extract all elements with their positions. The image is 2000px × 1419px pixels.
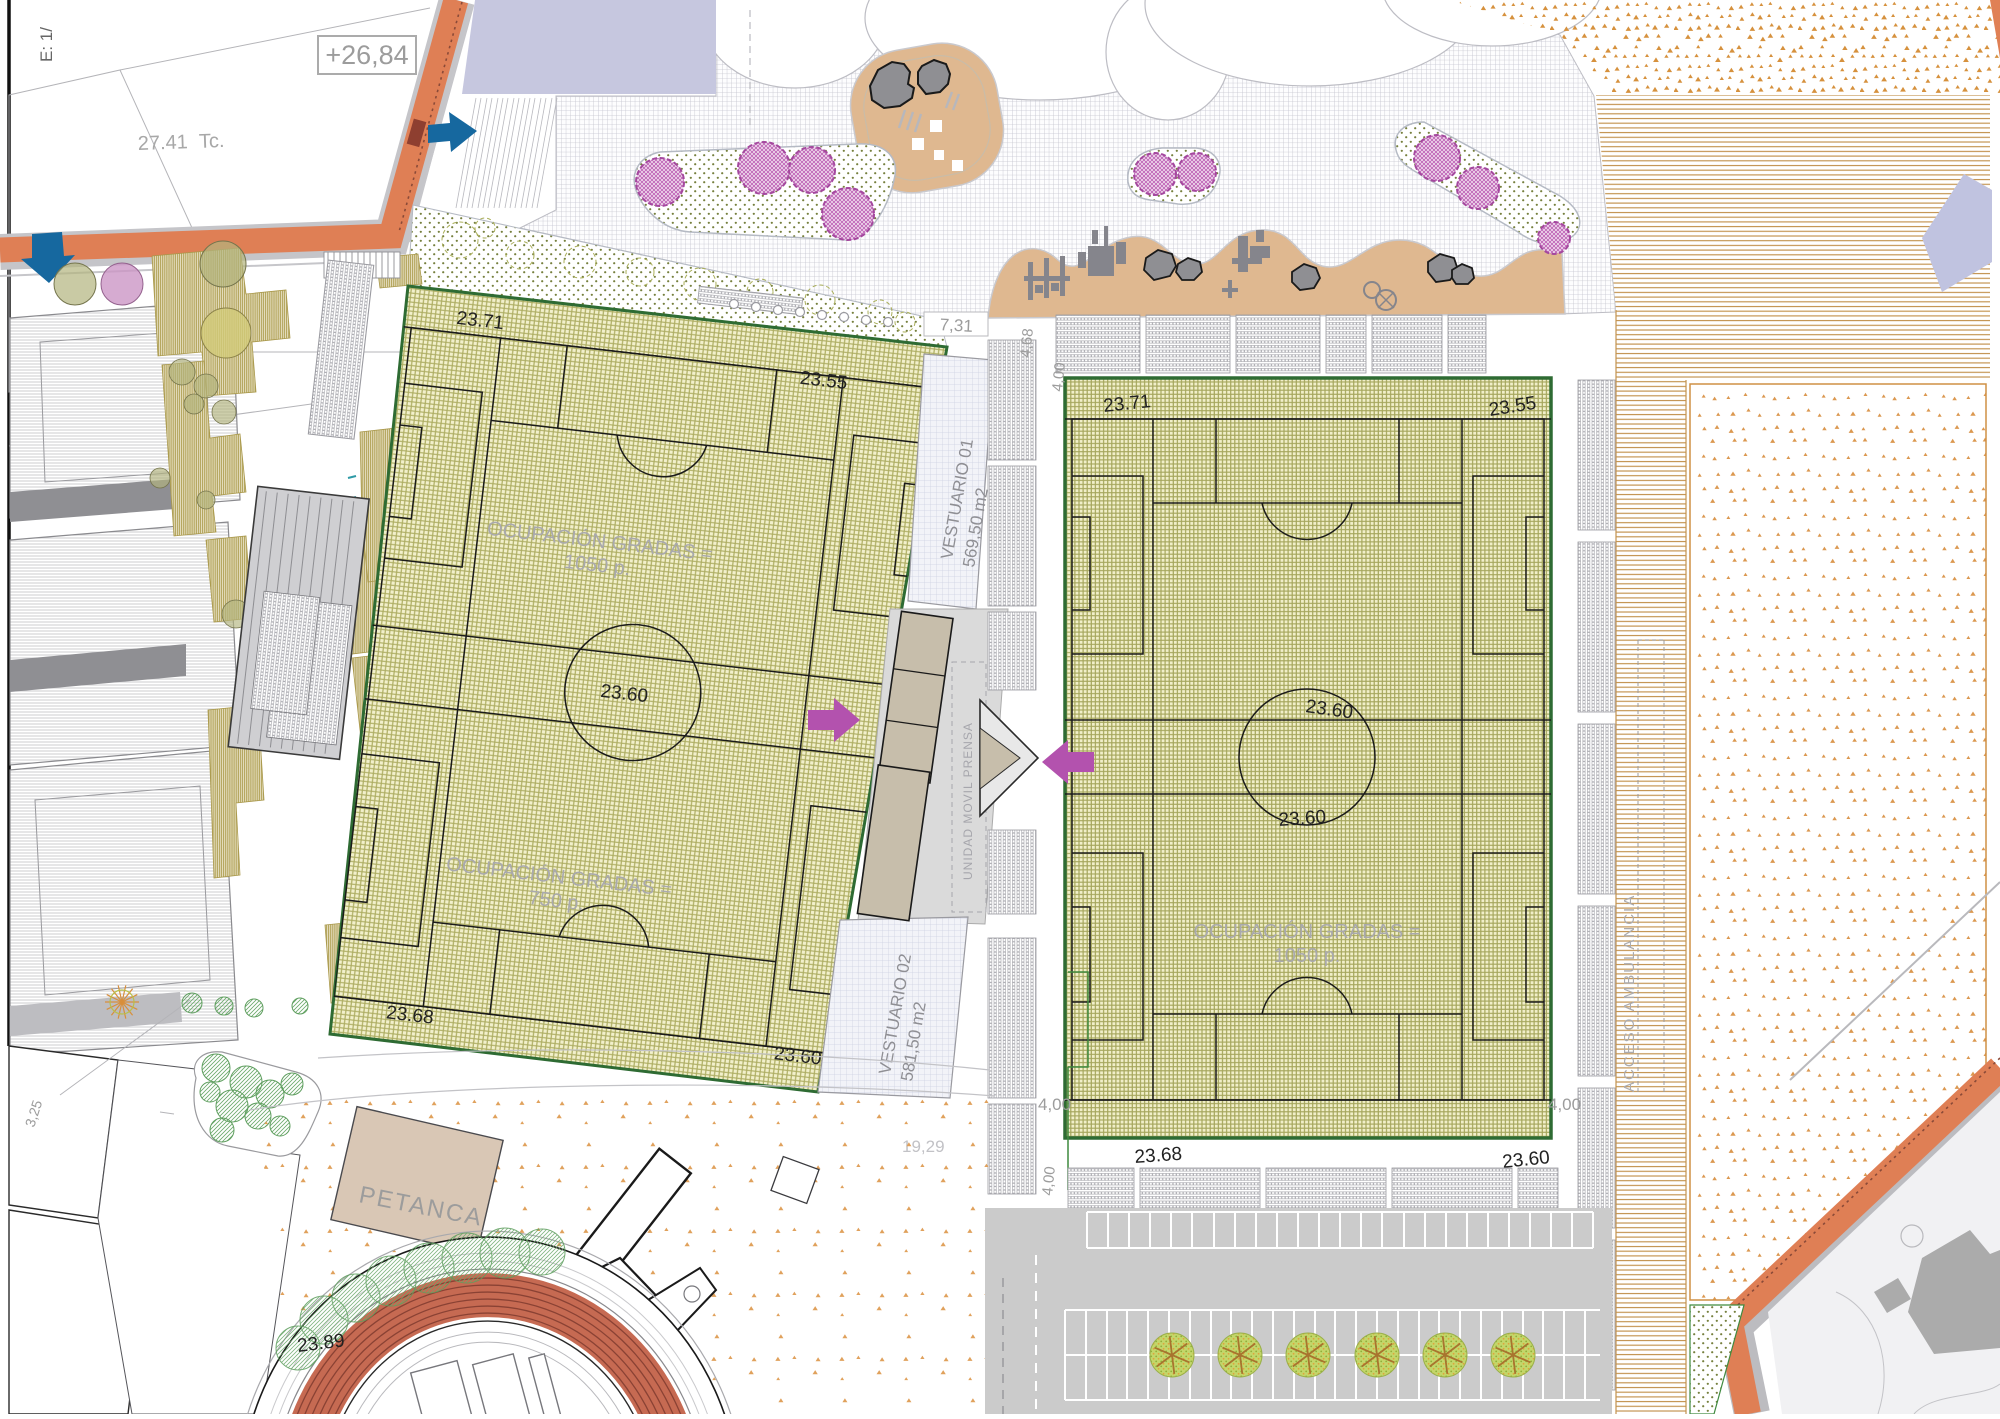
svg-text:7,31: 7,31: [939, 315, 973, 336]
svg-text:+26,84: +26,84: [325, 40, 408, 70]
svg-text:27.41 Tc.: 27.41 Tc.: [137, 130, 224, 155]
svg-text:E: 1/: E: 1/: [37, 27, 56, 62]
svg-text:23.60: 23.60: [1278, 807, 1327, 831]
svg-text:UNIDAD MOVIL PRENSA: UNIDAD MOVIL PRENSA: [961, 722, 975, 880]
svg-text:1050 p.: 1050 p.: [1274, 945, 1341, 967]
svg-text:ACCESO AMBULANCIA: ACCESO AMBULANCIA: [1621, 894, 1638, 1092]
svg-text:OCUPACIÓN GRADAS =: OCUPACIÓN GRADAS =: [1194, 920, 1421, 943]
svg-text:4,00: 4,00: [1038, 1095, 1071, 1114]
svg-text:23.68: 23.68: [1134, 1144, 1183, 1168]
svg-text:4,00: 4,00: [1548, 1095, 1581, 1114]
svg-text:4,00: 4,00: [1039, 1166, 1059, 1197]
svg-text:4,00: 4,00: [1049, 362, 1069, 393]
svg-text:4,68: 4,68: [1017, 328, 1037, 359]
